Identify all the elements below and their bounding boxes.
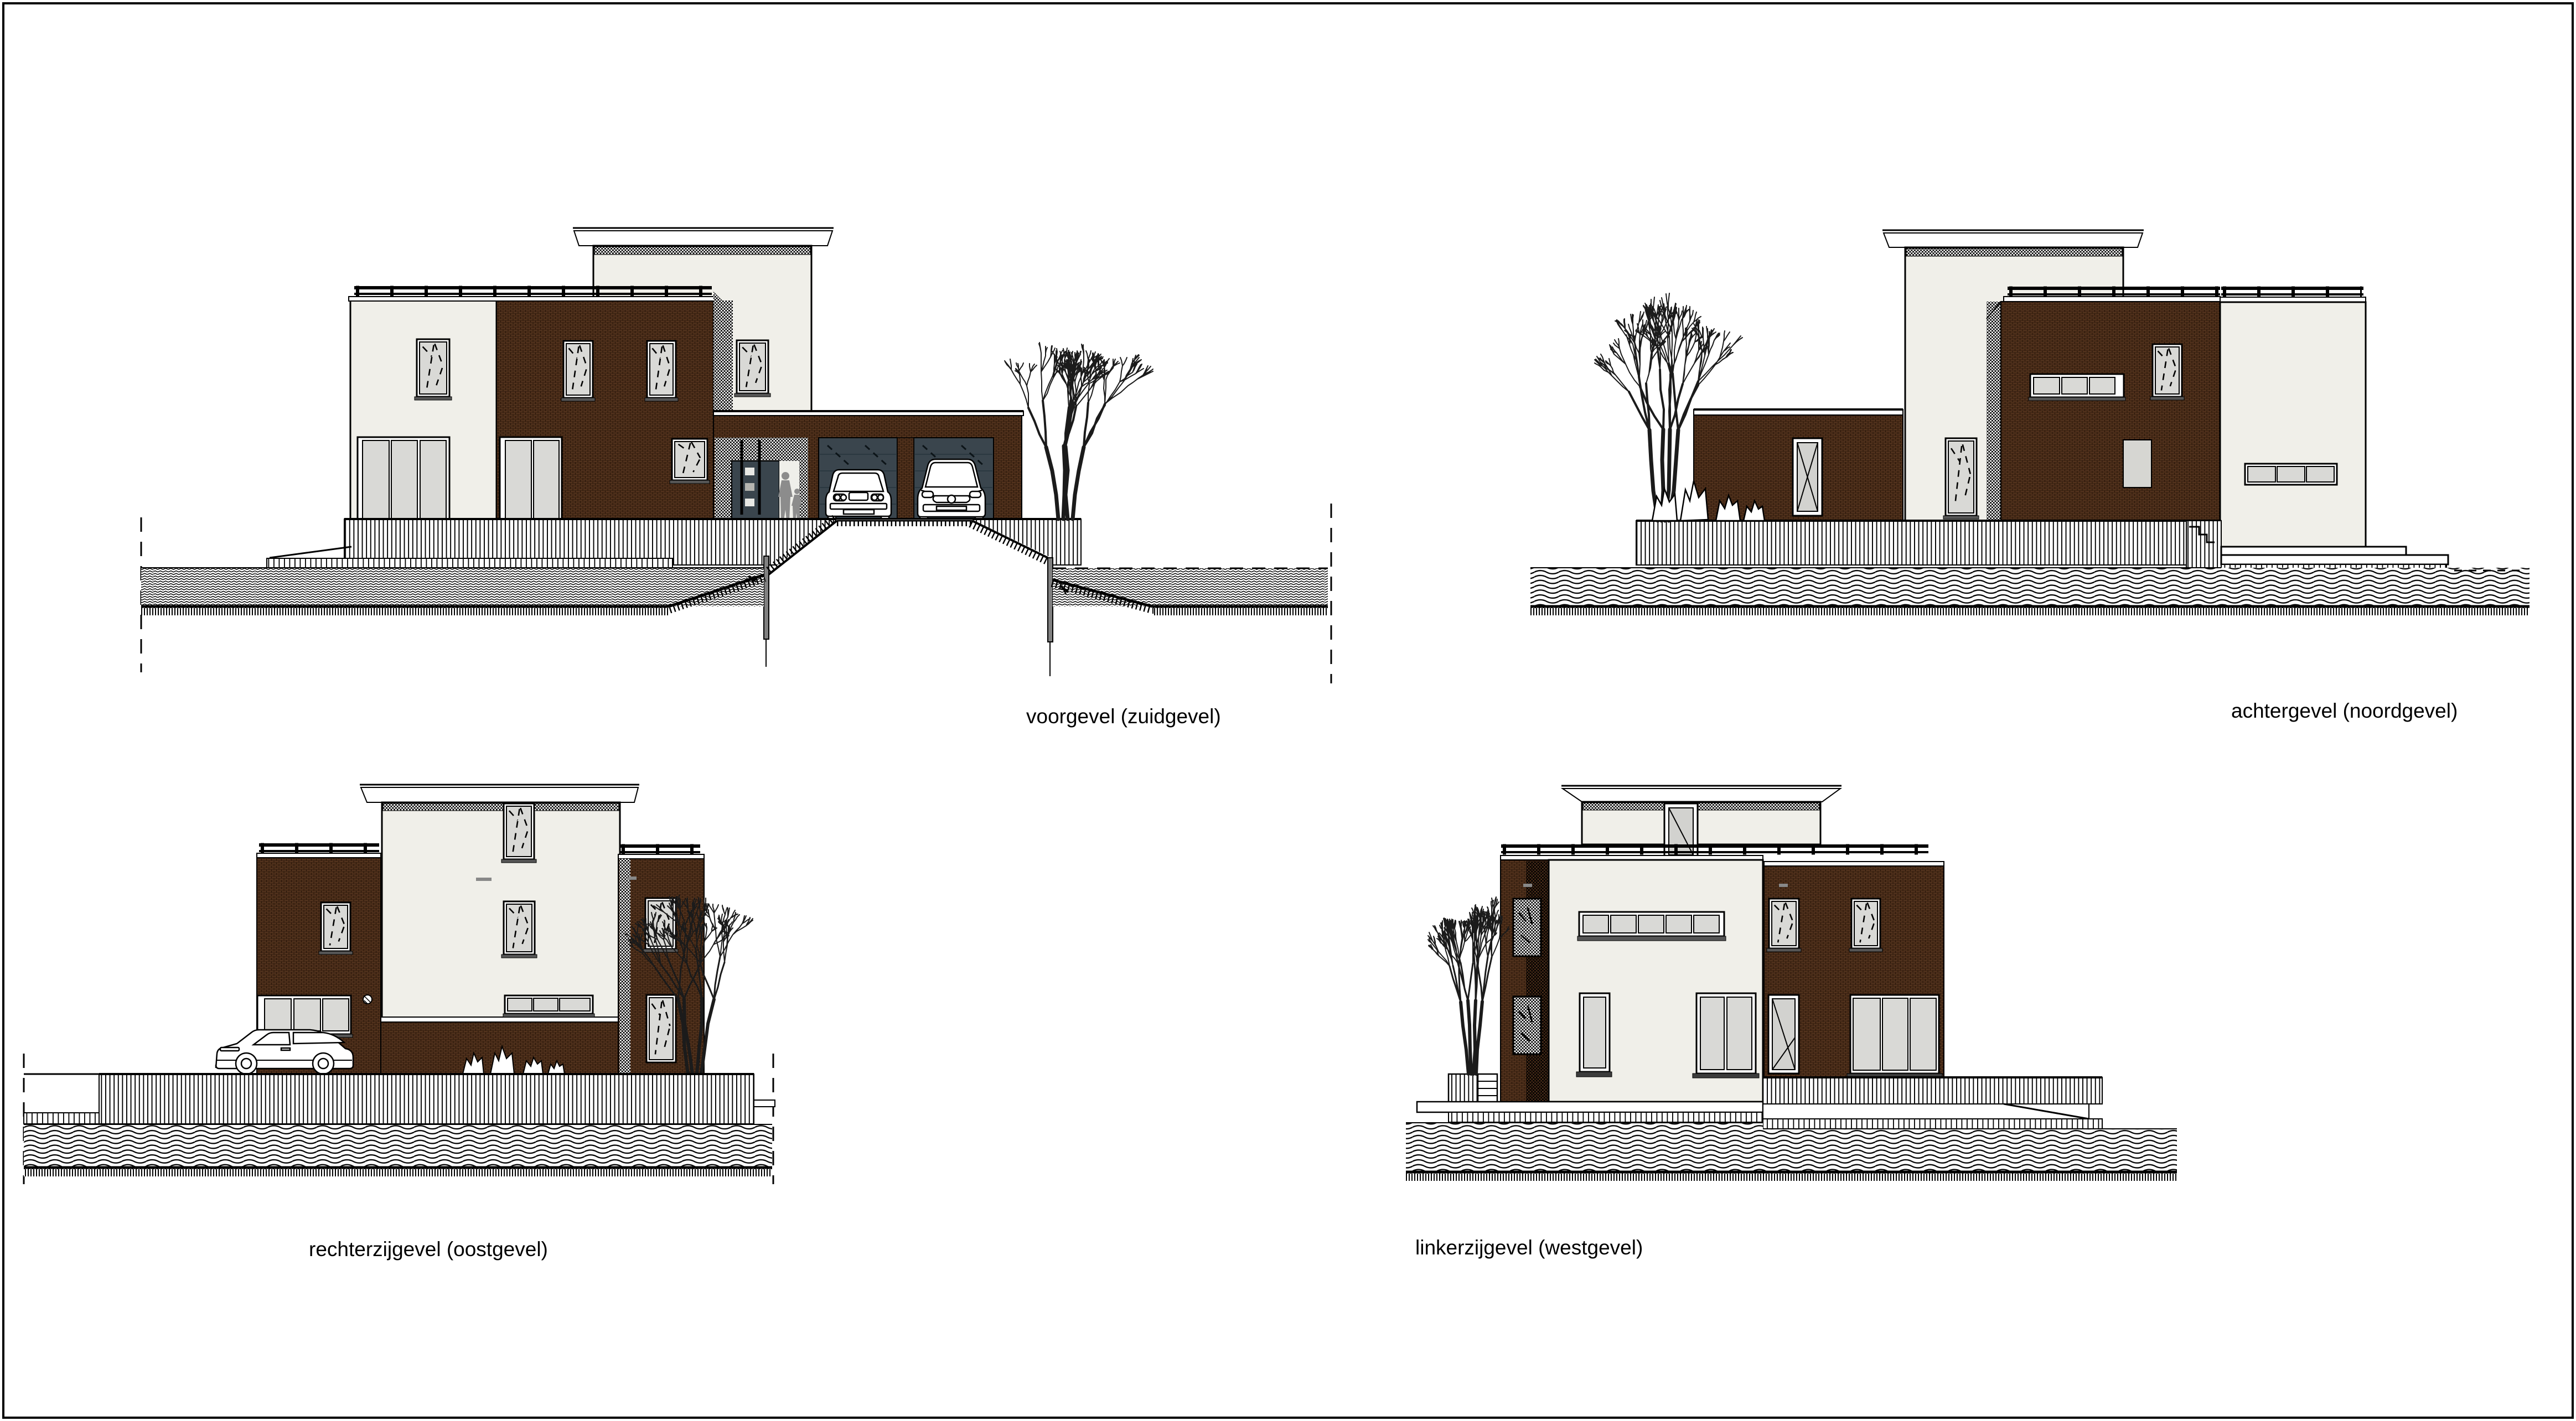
svg-text:rechterzijgevel (oostgevel): rechterzijgevel (oostgevel) [309,1238,548,1261]
svg-text:voorgevel (zuidgevel): voorgevel (zuidgevel) [1026,705,1221,728]
svg-text:linkerzijgevel (westgevel): linkerzijgevel (westgevel) [1415,1236,1643,1259]
svg-text:achtergevel (noordgevel): achtergevel (noordgevel) [2231,699,2458,722]
